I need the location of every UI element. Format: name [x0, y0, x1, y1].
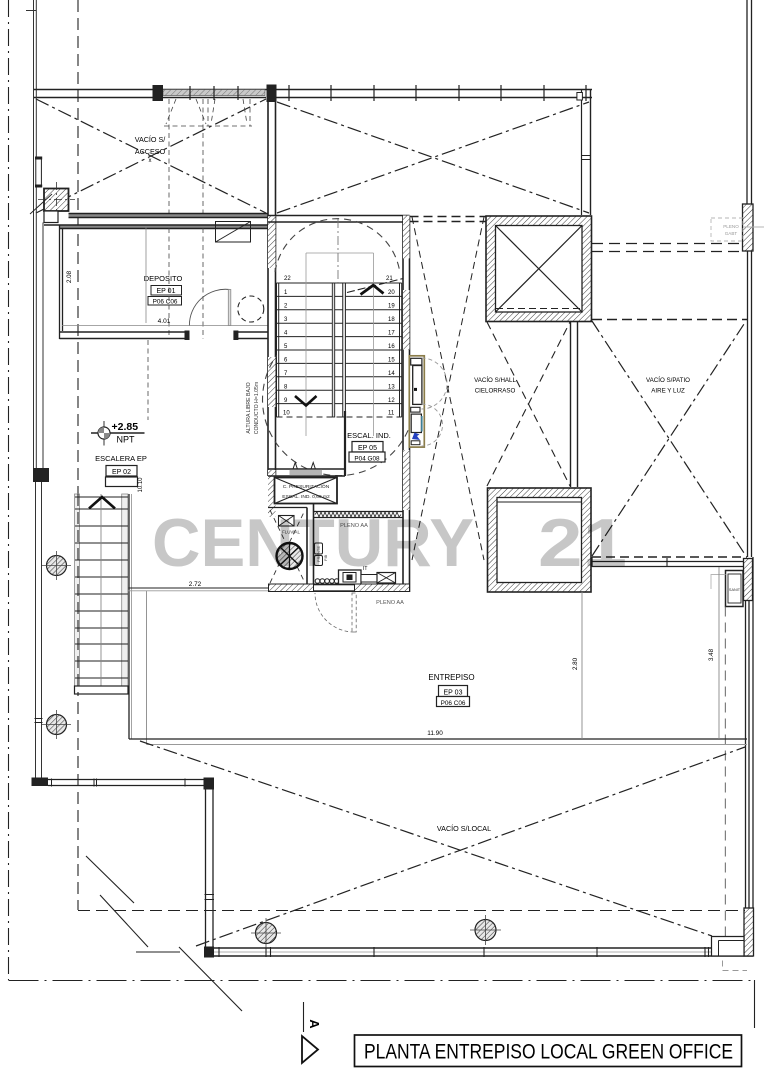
svg-text:C. PRESURIZACIÓN: C. PRESURIZACIÓN	[283, 483, 330, 490]
svg-text:4.01: 4.01	[158, 318, 171, 325]
svg-text:EP 03: EP 03	[444, 690, 463, 697]
svg-text:PLENO: PLENO	[723, 224, 739, 229]
svg-text:18: 18	[388, 317, 395, 323]
svg-text:11: 11	[388, 411, 395, 417]
svg-text:ESCAL. IND. 0,60 m2: ESCAL. IND. 0,60 m2	[282, 494, 330, 500]
svg-text:P06 C06: P06 C06	[441, 700, 466, 707]
svg-text:15: 15	[388, 358, 395, 364]
svg-text:10: 10	[283, 411, 290, 417]
svg-text:14: 14	[388, 371, 395, 377]
svg-text:CONDUCTO H=1.05m: CONDUCTO H=1.05m	[254, 382, 260, 435]
svg-text:ALTURA LIBRE BAJO: ALTURA LIBRE BAJO	[246, 382, 252, 433]
svg-text:19: 19	[388, 304, 395, 310]
svg-text:22: 22	[284, 276, 291, 282]
svg-text:2.72: 2.72	[189, 581, 202, 588]
svg-text:12: 12	[388, 398, 395, 404]
svg-text:2.08: 2.08	[66, 270, 73, 283]
svg-text:CENTURY: CENTURY	[152, 505, 474, 581]
svg-text:ESCALERA EP: ESCALERA EP	[95, 454, 147, 463]
svg-text:VACÍO S/HALL: VACÍO S/HALL	[474, 377, 516, 384]
svg-text:16: 16	[388, 344, 395, 350]
svg-text:VACÍO S/: VACÍO S/	[135, 135, 166, 144]
svg-text:EP 05: EP 05	[358, 445, 377, 452]
svg-text:P06 C06: P06 C06	[153, 299, 178, 306]
svg-text:13: 13	[388, 385, 395, 391]
svg-text:EP 02: EP 02	[112, 469, 131, 476]
svg-text:AIRE Y LUZ: AIRE Y LUZ	[651, 388, 685, 395]
svg-text:2.80: 2.80	[572, 657, 579, 670]
svg-text:21: 21	[538, 505, 627, 581]
svg-text:P04 G08: P04 G08	[354, 456, 380, 463]
svg-text:CIELORRASO: CIELORRASO	[475, 388, 516, 395]
svg-text:A: A	[307, 1019, 322, 1029]
svg-text:20: 20	[388, 290, 395, 296]
svg-text:ESCAL. IND.: ESCAL. IND.	[347, 431, 391, 440]
svg-text:17: 17	[388, 331, 395, 337]
svg-text:3.48: 3.48	[708, 648, 715, 661]
svg-text:VACÍO S/PATIO: VACÍO S/PATIO	[646, 377, 690, 384]
svg-text:SANIT: SANIT	[729, 588, 741, 592]
svg-text:x: x	[149, 158, 152, 164]
svg-text:PLENO AA: PLENO AA	[376, 600, 404, 606]
svg-text:DEPOSITO: DEPOSITO	[144, 274, 183, 283]
svg-text:+2.85: +2.85	[112, 421, 139, 433]
svg-text:11.90: 11.90	[427, 730, 443, 737]
svg-text:VACÍO S/LOCAL: VACÍO S/LOCAL	[437, 824, 491, 833]
svg-text:ENTREPISO: ENTREPISO	[428, 673, 474, 682]
svg-text:EP 01: EP 01	[157, 288, 176, 295]
svg-text:GABT: GABT	[725, 231, 738, 236]
svg-text:10.10: 10.10	[138, 477, 144, 493]
svg-text:PLANTA ENTREPISO LOCAL GREEN O: PLANTA ENTREPISO LOCAL GREEN OFFICE	[364, 1040, 733, 1064]
svg-text:ACCESO: ACCESO	[135, 147, 166, 156]
svg-text:NPT: NPT	[117, 435, 136, 445]
